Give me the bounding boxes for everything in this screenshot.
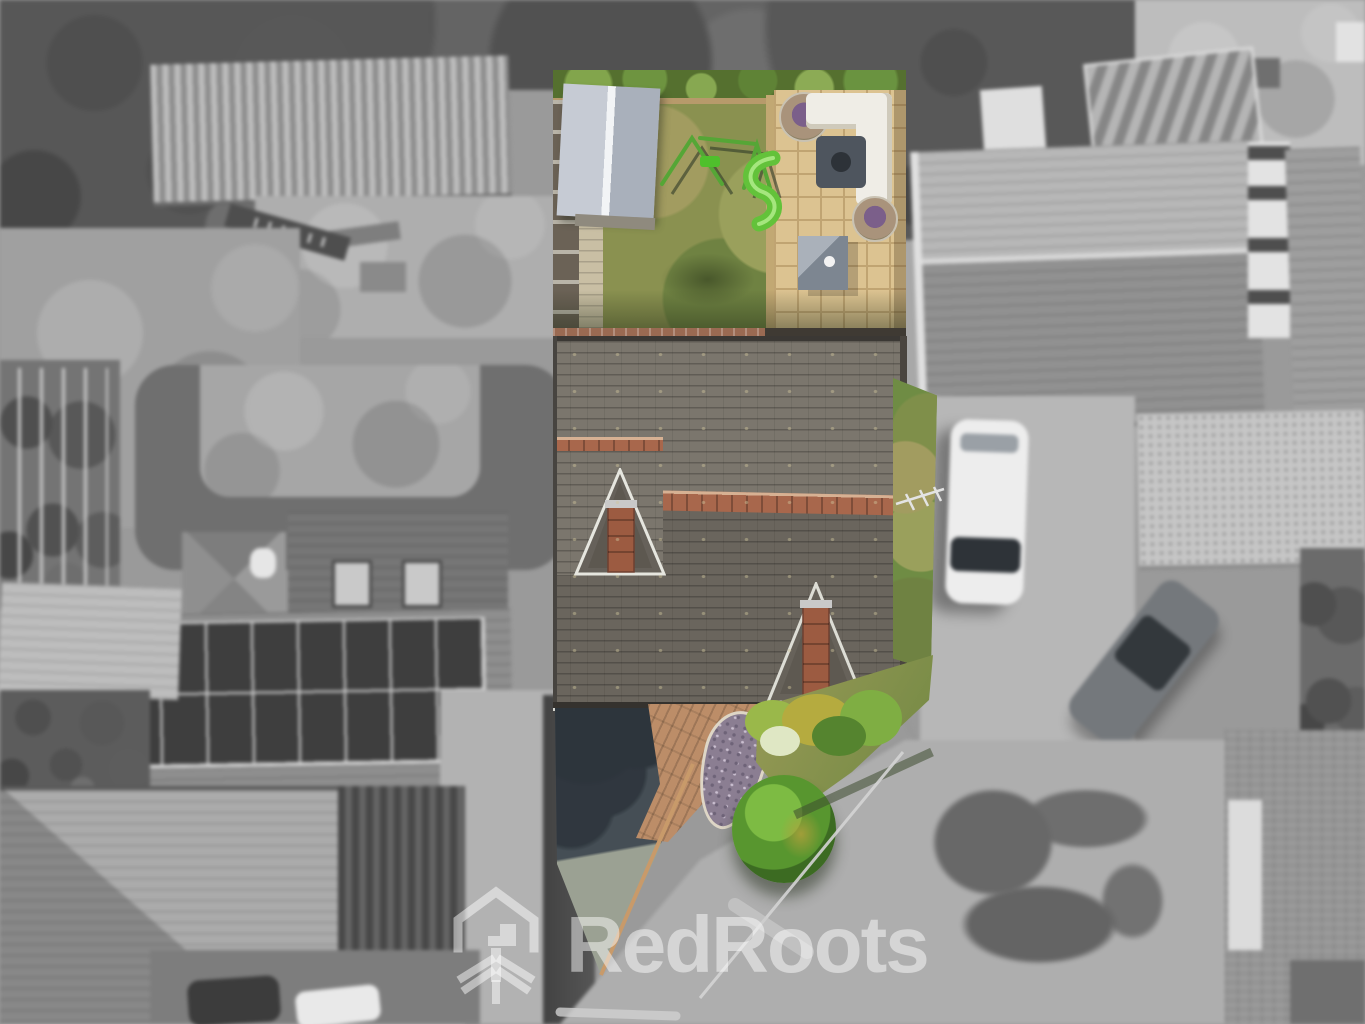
line-details (0, 0, 1365, 1024)
brand-logo-house-roots-icon (452, 886, 540, 1004)
aerial-photo: RedRoots (0, 0, 1365, 1024)
brand-name: RedRoots (566, 905, 928, 985)
watermark: RedRoots (452, 886, 928, 1004)
subject-property (0, 0, 1365, 1024)
